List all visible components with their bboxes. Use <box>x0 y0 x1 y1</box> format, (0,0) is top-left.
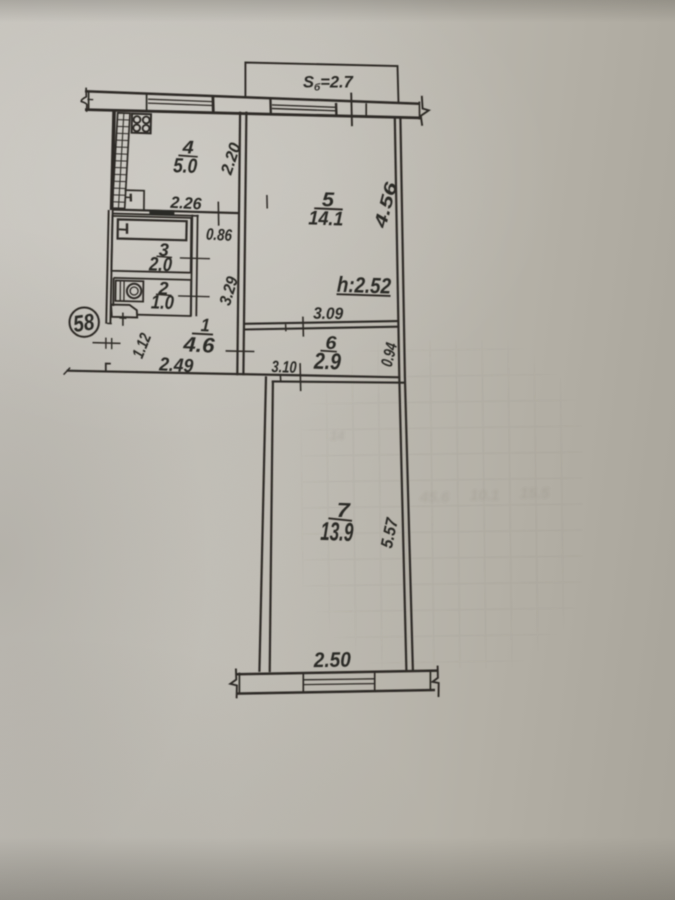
svg-text:13.9: 13.9 <box>320 516 354 547</box>
svg-text:4.6: 4.6 <box>182 333 216 358</box>
svg-text:0.86: 0.86 <box>205 226 233 245</box>
svg-text:2.9: 2.9 <box>313 348 342 375</box>
svg-text:1: 1 <box>200 314 210 335</box>
svg-text:1.0: 1.0 <box>151 291 175 314</box>
svg-text:10.1: 10.1 <box>470 487 499 504</box>
svg-text:14.1: 14.1 <box>308 207 344 230</box>
svg-text:2.0: 2.0 <box>148 253 173 276</box>
svg-text:5.0: 5.0 <box>173 154 198 178</box>
svg-text:Sб=2.7: Sб=2.7 <box>303 74 354 94</box>
svg-text:3.09: 3.09 <box>313 305 344 324</box>
svg-text:3.10: 3.10 <box>271 358 297 377</box>
svg-text:14: 14 <box>330 428 345 443</box>
svg-text:2.50: 2.50 <box>313 649 352 673</box>
svg-text:45.6: 45.6 <box>419 489 450 506</box>
svg-text:58: 58 <box>71 308 96 337</box>
svg-text:15.5: 15.5 <box>520 485 550 502</box>
